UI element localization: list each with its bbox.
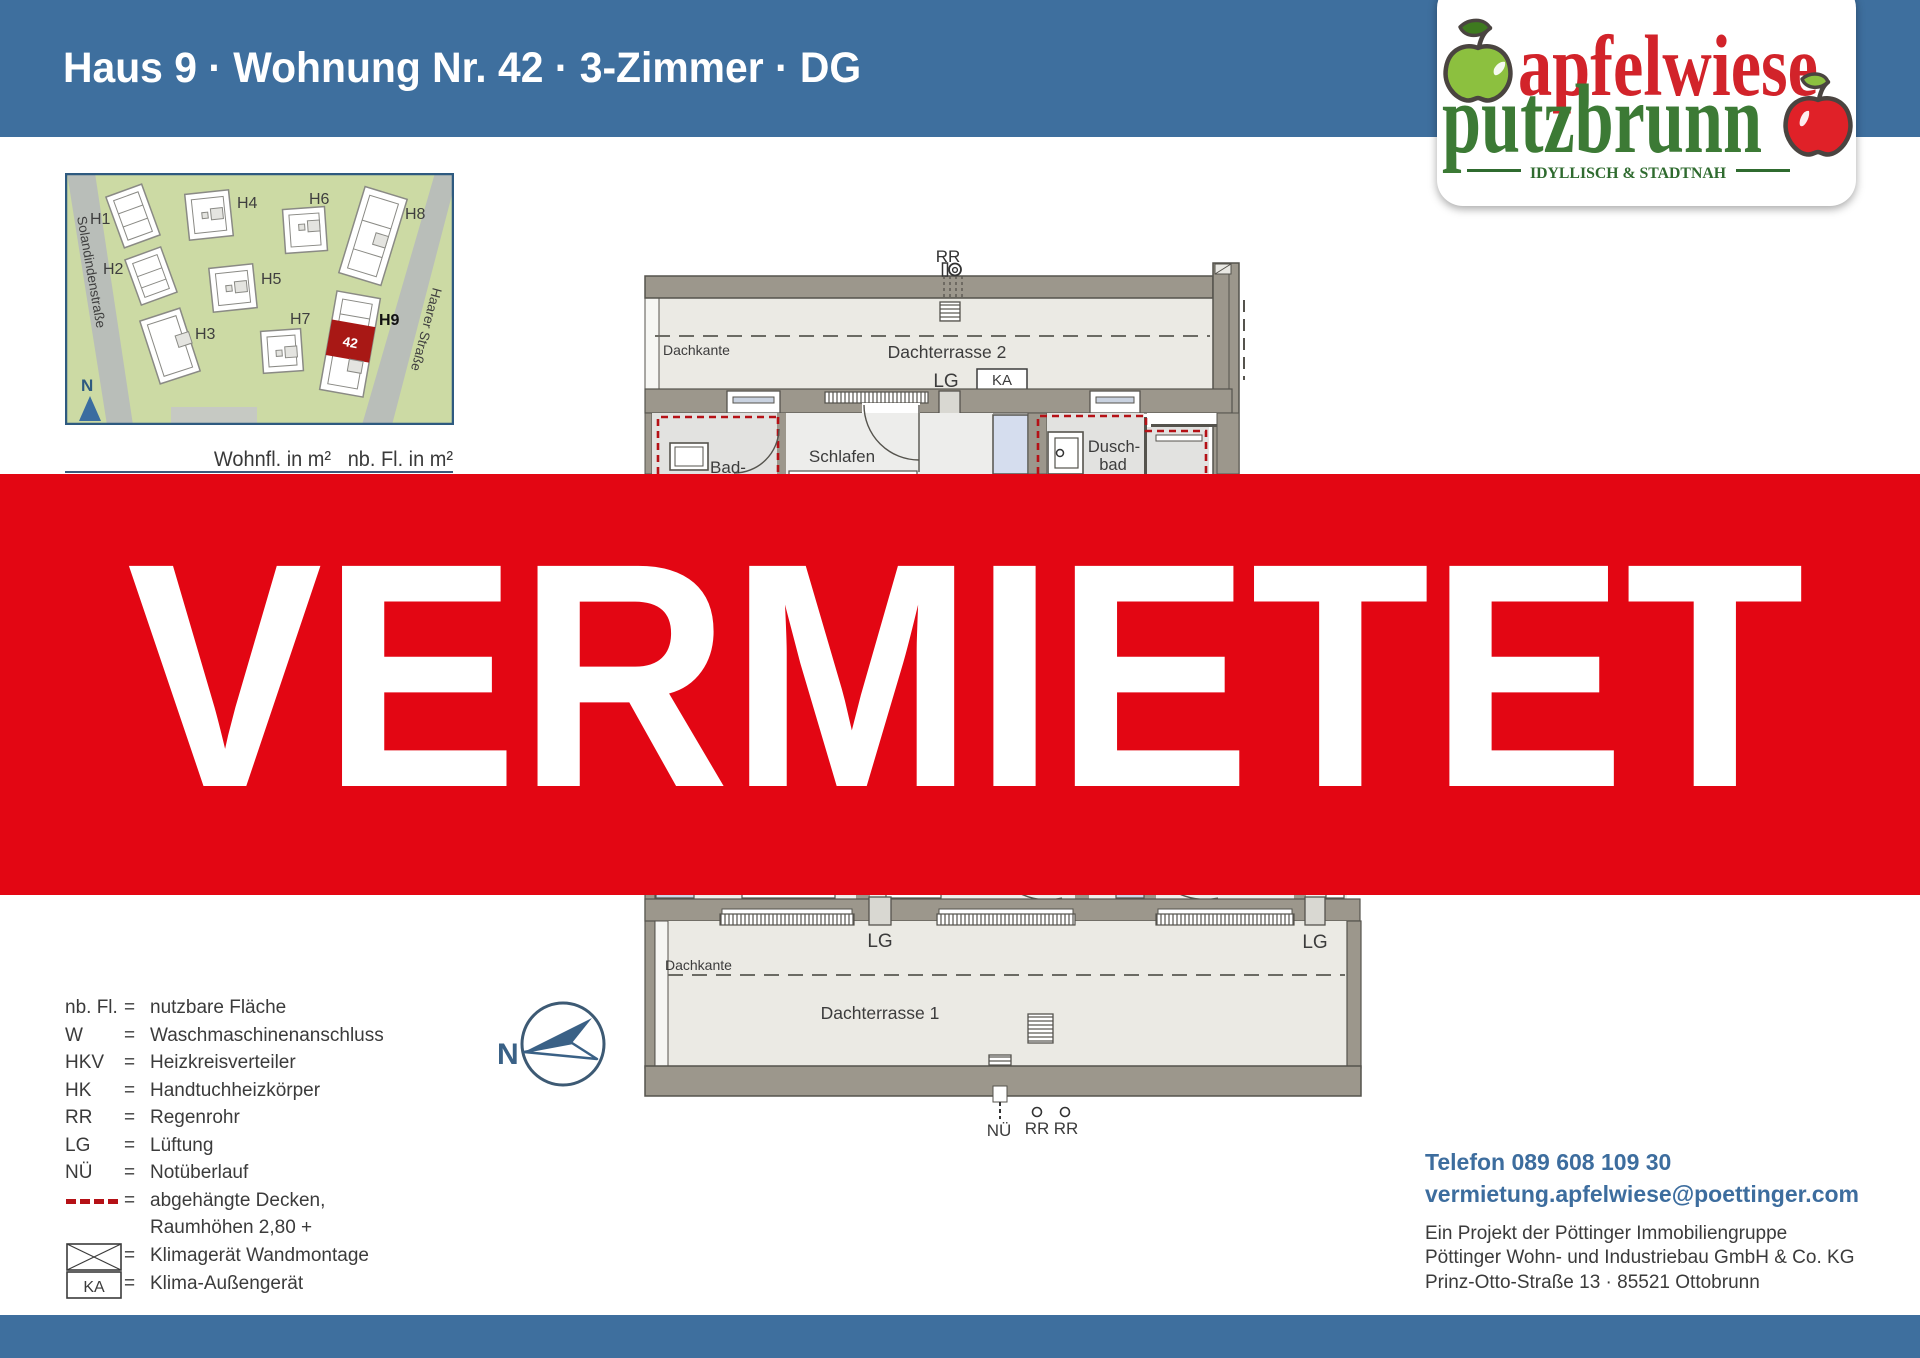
svg-text:H7: H7: [290, 311, 311, 328]
svg-text:Dachterrasse 1: Dachterrasse 1: [821, 1003, 940, 1023]
svg-text:N: N: [81, 376, 93, 395]
svg-text:H8: H8: [405, 206, 426, 223]
svg-text:H6: H6: [309, 191, 330, 208]
svg-text:42: 42: [342, 334, 359, 351]
svg-text:LG: LG: [1302, 932, 1327, 953]
svg-text:RR: RR: [1025, 1119, 1050, 1138]
svg-text:Dachkante: Dachkante: [665, 957, 732, 973]
svg-text:H3: H3: [195, 326, 216, 343]
svg-text:IDYLLISCH & STADTNAH: IDYLLISCH & STADTNAH: [1530, 165, 1727, 182]
svg-text:Dachterrasse 2: Dachterrasse 2: [888, 342, 1007, 362]
svg-text:H1: H1: [90, 211, 111, 228]
svg-text:H4: H4: [237, 195, 258, 212]
svg-text:H5: H5: [261, 271, 282, 288]
svg-text:H9: H9: [379, 312, 400, 329]
svg-text:LG: LG: [867, 931, 892, 952]
svg-text:Dachkante: Dachkante: [663, 342, 730, 358]
svg-text:NÜ: NÜ: [987, 1121, 1012, 1140]
svg-text:bad: bad: [1099, 456, 1127, 474]
svg-text:putzbrunn: putzbrunn: [1442, 65, 1762, 174]
svg-text:KA: KA: [992, 372, 1012, 389]
svg-text:Schlafen: Schlafen: [809, 447, 875, 466]
svg-text:H2: H2: [103, 261, 124, 278]
svg-text:Dusch-: Dusch-: [1088, 438, 1140, 456]
svg-text:KA: KA: [83, 1279, 105, 1296]
svg-text:RR: RR: [1054, 1119, 1079, 1138]
svg-text:N: N: [497, 1038, 519, 1071]
